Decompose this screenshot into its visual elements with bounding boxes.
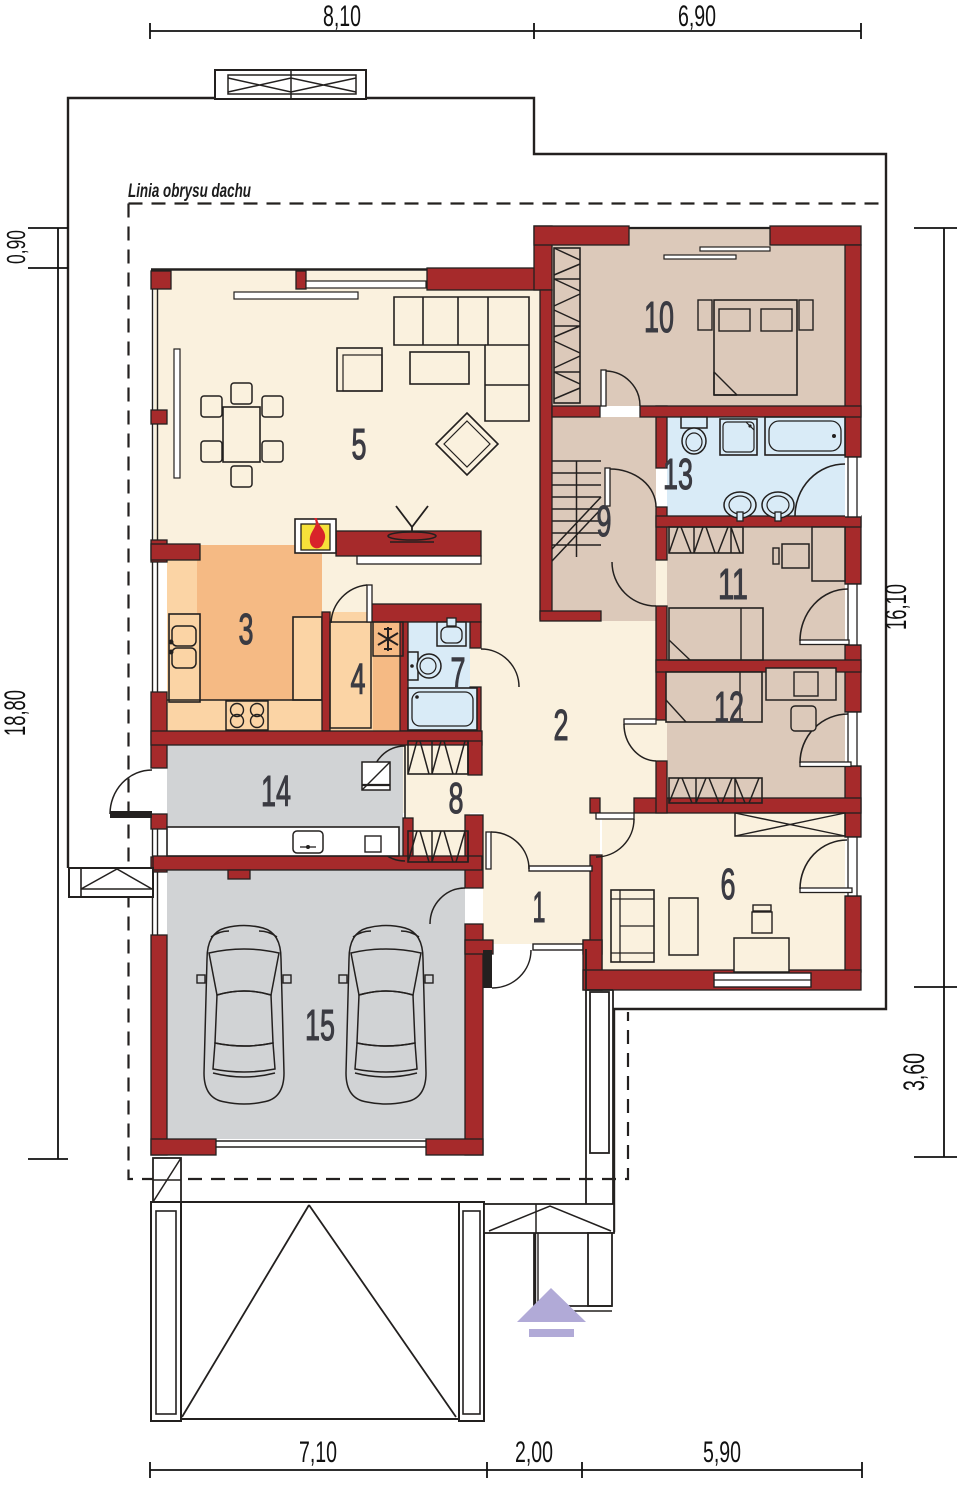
svg-text:16,10: 16,10: [880, 584, 913, 630]
svg-text:7,10: 7,10: [299, 1436, 337, 1469]
svg-text:15: 15: [305, 1001, 335, 1050]
svg-text:3: 3: [239, 605, 254, 654]
svg-text:6: 6: [721, 860, 736, 909]
svg-text:0,90: 0,90: [1, 230, 31, 264]
svg-text:2: 2: [554, 701, 569, 750]
svg-text:13: 13: [663, 450, 693, 499]
svg-text:10: 10: [644, 293, 674, 342]
svg-text:12: 12: [714, 683, 744, 732]
svg-text:5: 5: [352, 420, 367, 469]
svg-text:7: 7: [451, 649, 466, 698]
svg-text:18,80: 18,80: [0, 690, 32, 736]
svg-text:Linia obrysu dachu: Linia obrysu dachu: [128, 181, 251, 202]
svg-text:3,60: 3,60: [898, 1053, 931, 1091]
svg-text:5,90: 5,90: [703, 1436, 741, 1469]
svg-text:6,90: 6,90: [678, 0, 716, 33]
svg-text:1: 1: [533, 883, 546, 932]
svg-text:2,00: 2,00: [515, 1436, 553, 1469]
svg-text:14: 14: [261, 767, 291, 816]
svg-text:11: 11: [718, 560, 748, 609]
svg-text:8,10: 8,10: [323, 0, 361, 33]
svg-text:8: 8: [449, 774, 464, 823]
svg-text:4: 4: [351, 655, 366, 704]
svg-text:9: 9: [597, 497, 612, 546]
